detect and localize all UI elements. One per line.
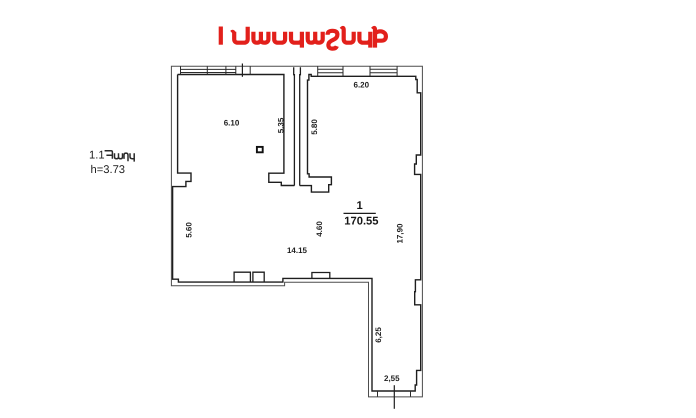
svg-text:5.60: 5.60 [185, 222, 194, 238]
svg-text:2,55: 2,55 [384, 374, 400, 383]
svg-text:h=3.73: h=3.73 [91, 164, 126, 176]
svg-text:5.80: 5.80 [310, 119, 319, 135]
svg-text:4.60: 4.60 [315, 221, 324, 237]
svg-text:1: 1 [356, 200, 362, 212]
svg-text:14.15: 14.15 [287, 246, 308, 255]
svg-text:5.35: 5.35 [277, 117, 286, 133]
svg-text:170.55: 170.55 [344, 216, 378, 228]
svg-text:6.10: 6.10 [224, 119, 240, 128]
svg-text:1.1: 1.1 [89, 150, 105, 162]
svg-text:6.20: 6.20 [354, 80, 370, 89]
svg-text:17,90: 17,90 [395, 223, 404, 244]
svg-text:6,25: 6,25 [374, 327, 383, 343]
